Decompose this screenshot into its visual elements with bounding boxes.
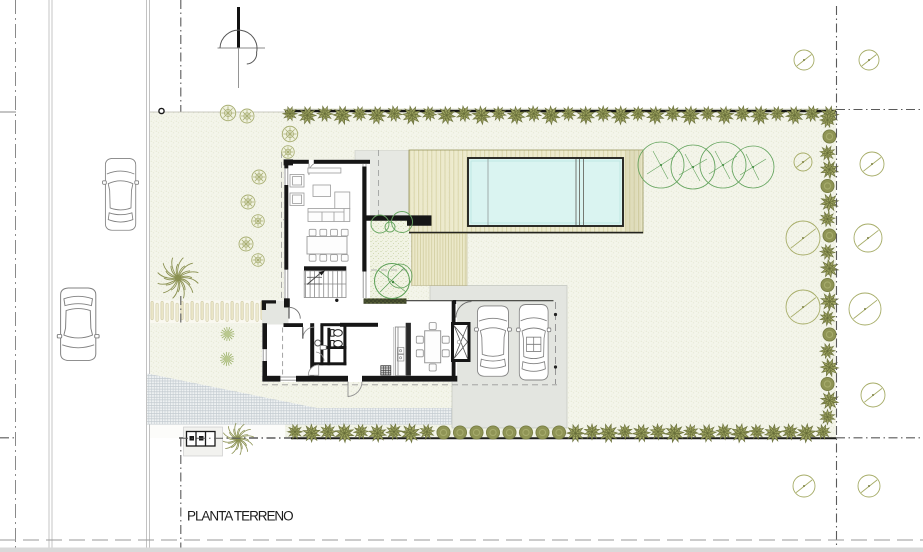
svg-text:PLANTA TERRENO: PLANTA TERRENO xyxy=(187,509,293,524)
